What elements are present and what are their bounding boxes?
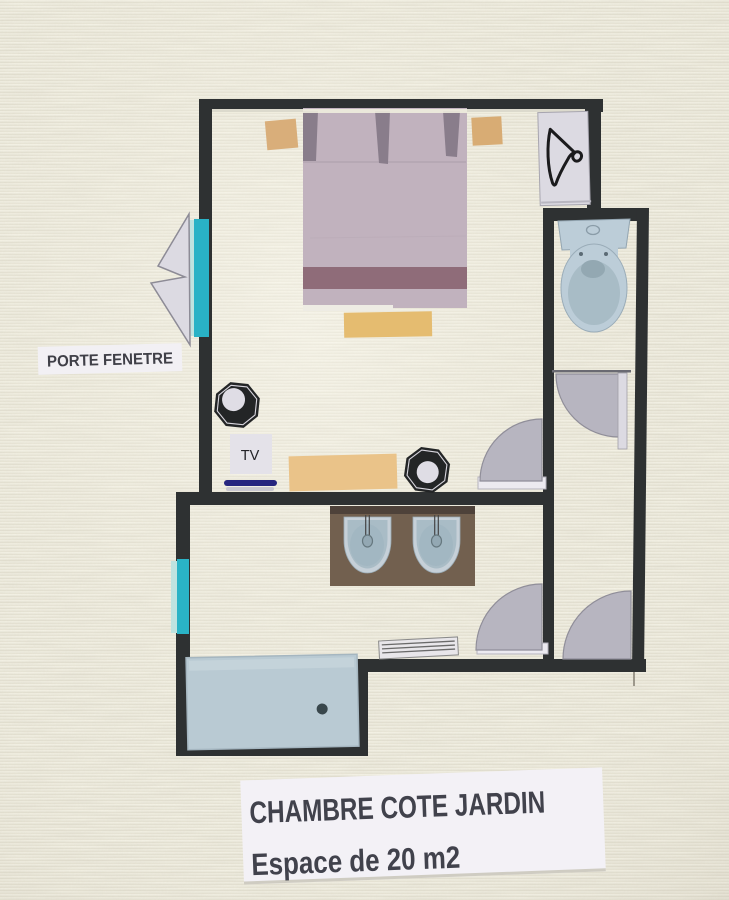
- svg-text:TV: TV: [241, 448, 260, 464]
- svg-text:PORTE FENETRE: PORTE FENETRE: [47, 350, 174, 370]
